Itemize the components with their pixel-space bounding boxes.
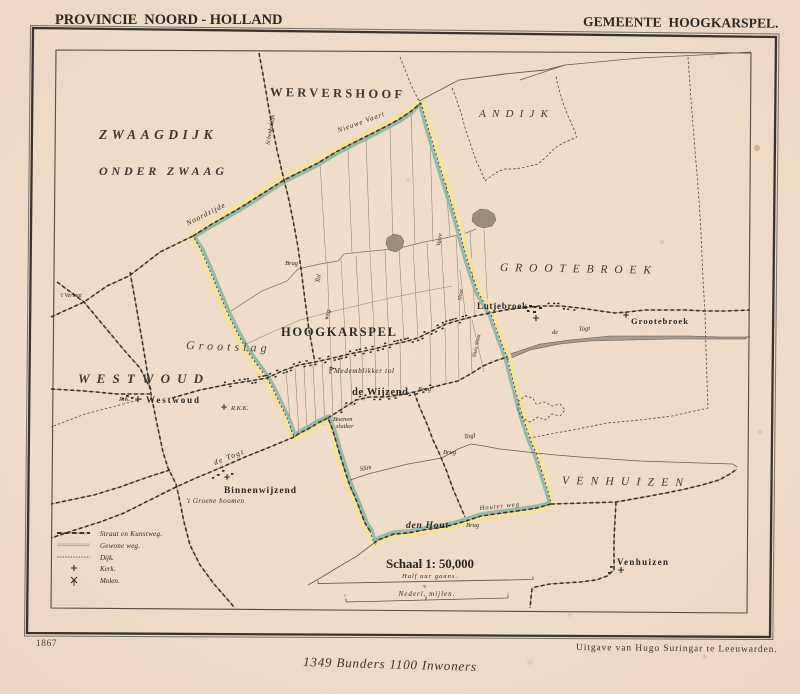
svg-text:Lutjebroek: Lutjebroek (477, 301, 527, 311)
svg-text:Grootslag: Grootslag (186, 338, 272, 355)
svg-text:Medemblikker tol: Medemblikker tol (333, 367, 394, 375)
svg-text:Brug: Brug (466, 522, 480, 529)
svg-text:VENHUIZEN: VENHUIZEN (562, 475, 688, 489)
svg-text:ZWAAGDIJK: ZWAAGDIJK (98, 127, 217, 142)
svg-text:Schaal 1: 50,000: Schaal 1: 50,000 (386, 556, 475, 571)
svg-text:Gewone weg.: Gewone weg. (100, 542, 140, 550)
svg-text:Binnenwijzend: Binnenwijzend (224, 486, 297, 496)
svg-text:PROVINCIE NOORD - HOLLAND: PROVINCIE NOORD - HOLLAND (55, 12, 286, 28)
svg-text:de: de (552, 329, 558, 336)
svg-text:Togt: Togt (579, 325, 591, 333)
svg-text:1867: 1867 (36, 639, 57, 649)
svg-text:den Hout: den Hout (406, 521, 448, 531)
svg-text:R.K.: R.K. (118, 396, 131, 403)
svg-text:GEMEENTE HOOGKARSPEL.: GEMEENTE HOOGKARSPEL. (583, 14, 781, 31)
svg-text:HOOGKARSPEL: HOOGKARSPEL (281, 325, 398, 339)
svg-text:'t Verlaat: 't Verlaat (60, 293, 82, 299)
svg-text:Molen.: Molen. (99, 577, 120, 585)
svg-text:'t Groene boomen: 't Groene boomen (186, 497, 245, 505)
svg-text:Dijk.: Dijk. (99, 554, 114, 562)
svg-text:Westwoud: Westwoud (146, 395, 199, 405)
svg-text:Kerk.: Kerk. (99, 565, 116, 573)
svg-text:Uitgave van Hugo Suringar te: Uitgave van Hugo Suringar te Leeuwarden. (576, 643, 777, 655)
svg-text:Brug: Brug (443, 449, 457, 456)
svg-text:1: 1 (507, 591, 509, 595)
svg-text:78: 78 (422, 584, 426, 589)
svg-text:WESTWOUD: WESTWOUD (78, 371, 208, 386)
svg-text:Brug: Brug (285, 260, 299, 267)
svg-text:Boenen: Boenen (333, 416, 353, 423)
svg-text:Brug: Brug (418, 386, 432, 393)
svg-text:sluiker: sluiker (336, 423, 354, 430)
svg-text:Half uur gaans.: Half uur gaans. (401, 573, 458, 580)
svg-text:Grootebroek: Grootebroek (631, 316, 688, 326)
svg-text:Venhuizen: Venhuizen (617, 557, 668, 567)
svg-text:ANDIJK: ANDIJK (478, 108, 552, 120)
svg-text:R.K.K.: R.K.K. (230, 405, 249, 412)
svg-text:0: 0 (344, 594, 346, 598)
svg-text:Straat en Kunstweg.: Straat en Kunstweg. (100, 530, 162, 538)
svg-text:ONDER ZWAAG: ONDER ZWAAG (99, 164, 227, 178)
svg-text:WERVERSHOOF: WERVERSHOOF (270, 85, 406, 101)
svg-text:de Wijzend: de Wijzend (352, 387, 408, 398)
